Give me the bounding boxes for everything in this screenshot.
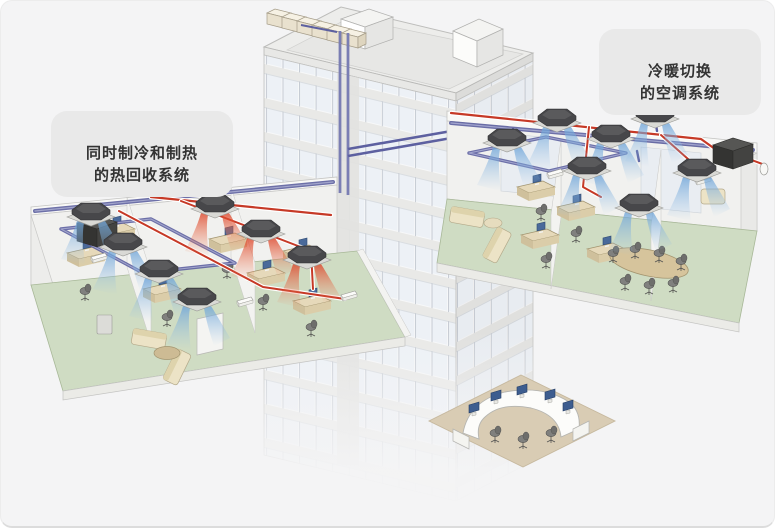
wall-bracket [760,163,768,175]
label-heat-recovery-system: 同时制冷和制热 的热回收系统 [51,111,233,197]
copier [97,315,112,334]
illustration-card: 同时制冷和制热 的热回收系统 冷暖切换 的空调系统 [0,0,775,528]
label-heat-recovery-text: 同时制冷和制热 的热回收系统 [86,145,198,185]
label-switch-text: 冷暖切换 的空调系统 [640,63,720,103]
label-switch-system: 冷暖切换 的空调系统 [599,29,761,115]
end-wall [741,153,757,239]
